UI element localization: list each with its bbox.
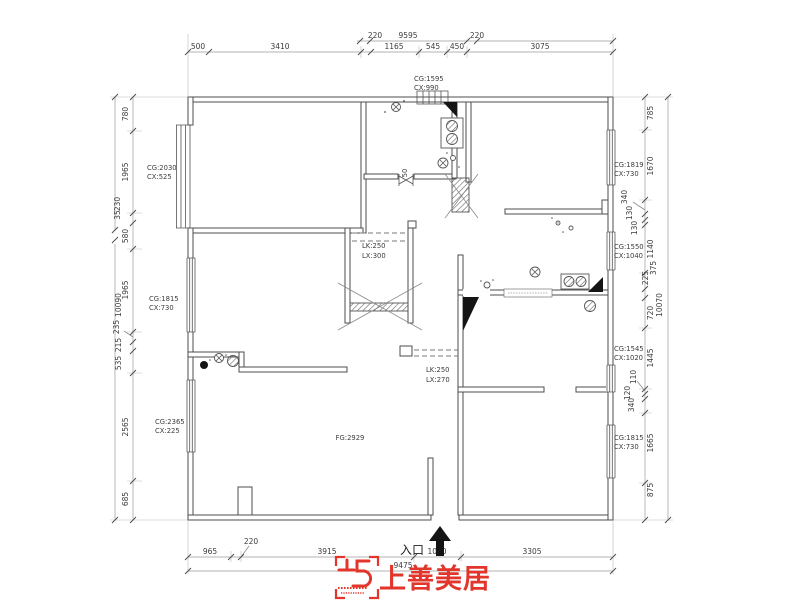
dim-total-label: 10090: [114, 293, 123, 317]
dim-label: 780: [121, 107, 130, 122]
door-width-label: 50: [401, 169, 409, 178]
window-right-mid1: [606, 232, 616, 270]
dim-label: 340: [627, 398, 636, 413]
window-label-cg: CG:1550: [614, 243, 644, 251]
window-label-cg: CG:1595: [414, 75, 444, 83]
window-label-cx: CX:1040: [614, 252, 643, 260]
dim-label: 545: [426, 42, 441, 51]
dim-label: 110: [629, 370, 638, 385]
dim-label: 720: [646, 306, 655, 321]
dim-label: 500: [191, 42, 206, 51]
dim-label: 1665: [646, 433, 655, 452]
dim-label: 685: [121, 492, 130, 507]
dim-label: 3075: [530, 42, 549, 51]
small-fixture-icon: [484, 282, 490, 288]
dim-label: 3410: [270, 42, 289, 51]
dim-label: 1965: [121, 162, 130, 181]
dim-label: 580: [121, 229, 130, 244]
dim-total-label: 10070: [655, 293, 664, 317]
dim-label: 9595: [398, 31, 417, 40]
dim-label: 35: [113, 210, 122, 220]
window-label-cx: CX:730: [149, 304, 174, 312]
entrance-label: 入口: [400, 543, 424, 557]
window-label-cg: CG:1819: [614, 161, 644, 169]
window-label-cg: CG:1545: [614, 345, 644, 353]
window-label-cx: CX:730: [614, 170, 639, 178]
entrance-arrow-icon: [429, 526, 451, 541]
window-label-cg: CG:2030: [147, 164, 177, 172]
window-label-cg: CG:1815: [614, 434, 644, 442]
window-label-cx: CX:730: [614, 443, 639, 451]
dim-label: 215: [114, 338, 123, 353]
window-label-cx: CX:990: [414, 84, 439, 92]
dim-label: 875: [646, 483, 655, 498]
window-label-cg: CG:2365: [155, 418, 185, 426]
dim-label: 2565: [121, 417, 130, 436]
dim-label: 1445: [646, 348, 655, 367]
dim-label: 220: [244, 537, 259, 546]
dim-label: 220: [368, 31, 383, 40]
floor-plan-canvas: 220 9595 220 500 3410 1165 545 450 3075 …: [0, 0, 800, 600]
dim-label: 340: [620, 190, 629, 205]
beam-label-lx: LX:300: [362, 252, 386, 260]
window-left-bay: [176, 125, 193, 228]
dim-label: 1165: [384, 42, 403, 51]
floor-plan-sheet: 220 9595 220 500 3410 1165 545 450 3075 …: [0, 0, 800, 600]
window-label-cg: CG:1815: [149, 295, 179, 303]
dim-label: 535: [114, 356, 123, 371]
dim-label: 130: [630, 221, 639, 236]
dim-label: 220: [470, 31, 485, 40]
door-leaf-corridor: [588, 277, 603, 292]
dim-label: 375: [649, 261, 658, 276]
window-label-cx: CX:225: [155, 427, 180, 435]
dim-label: 785: [646, 106, 655, 121]
brand-name: 上善美居: [379, 563, 491, 595]
beam-label-lx: LX:270: [426, 376, 450, 384]
window-labels: CG:1595 CX:990 CG:2030 CX:525 CG:1819 CX…: [147, 75, 644, 451]
window-right-mid2: [606, 365, 616, 392]
dim-label: 235: [112, 320, 121, 335]
spot-light-icon: [569, 226, 573, 230]
dim-label: 1670: [646, 156, 655, 175]
window-label-cx: CX:525: [147, 173, 172, 181]
window-label-cx: CX:1020: [614, 354, 643, 362]
dim-label: 1140: [646, 239, 655, 258]
dim-label: 450: [450, 42, 465, 51]
door-leaf-bathroom: [463, 297, 479, 331]
windows: [176, 91, 616, 478]
dim-label: 225: [641, 271, 650, 286]
drain-icon: [228, 356, 239, 367]
window-left-middle: [186, 258, 196, 332]
dim-label: 3305: [522, 547, 541, 556]
brand-logo: 上善美居: [336, 557, 491, 598]
dim-label: 230: [113, 197, 122, 212]
beam-label-lk: LK:250: [426, 366, 450, 374]
beam-label-lk: LK:250: [362, 242, 386, 250]
dim-label: 130: [625, 206, 634, 221]
window-left-lower: [186, 380, 196, 452]
dim-label: 3915: [317, 547, 336, 556]
drain-icon: [585, 301, 596, 312]
entrance: 入口: [400, 526, 451, 557]
fixtures: [200, 100, 596, 369]
window-right-lower: [606, 425, 616, 478]
floor-height-label: FG:2929: [336, 434, 365, 442]
doors: [399, 102, 603, 331]
column-dot-icon: [200, 361, 208, 369]
dim-label: 965: [203, 547, 218, 556]
